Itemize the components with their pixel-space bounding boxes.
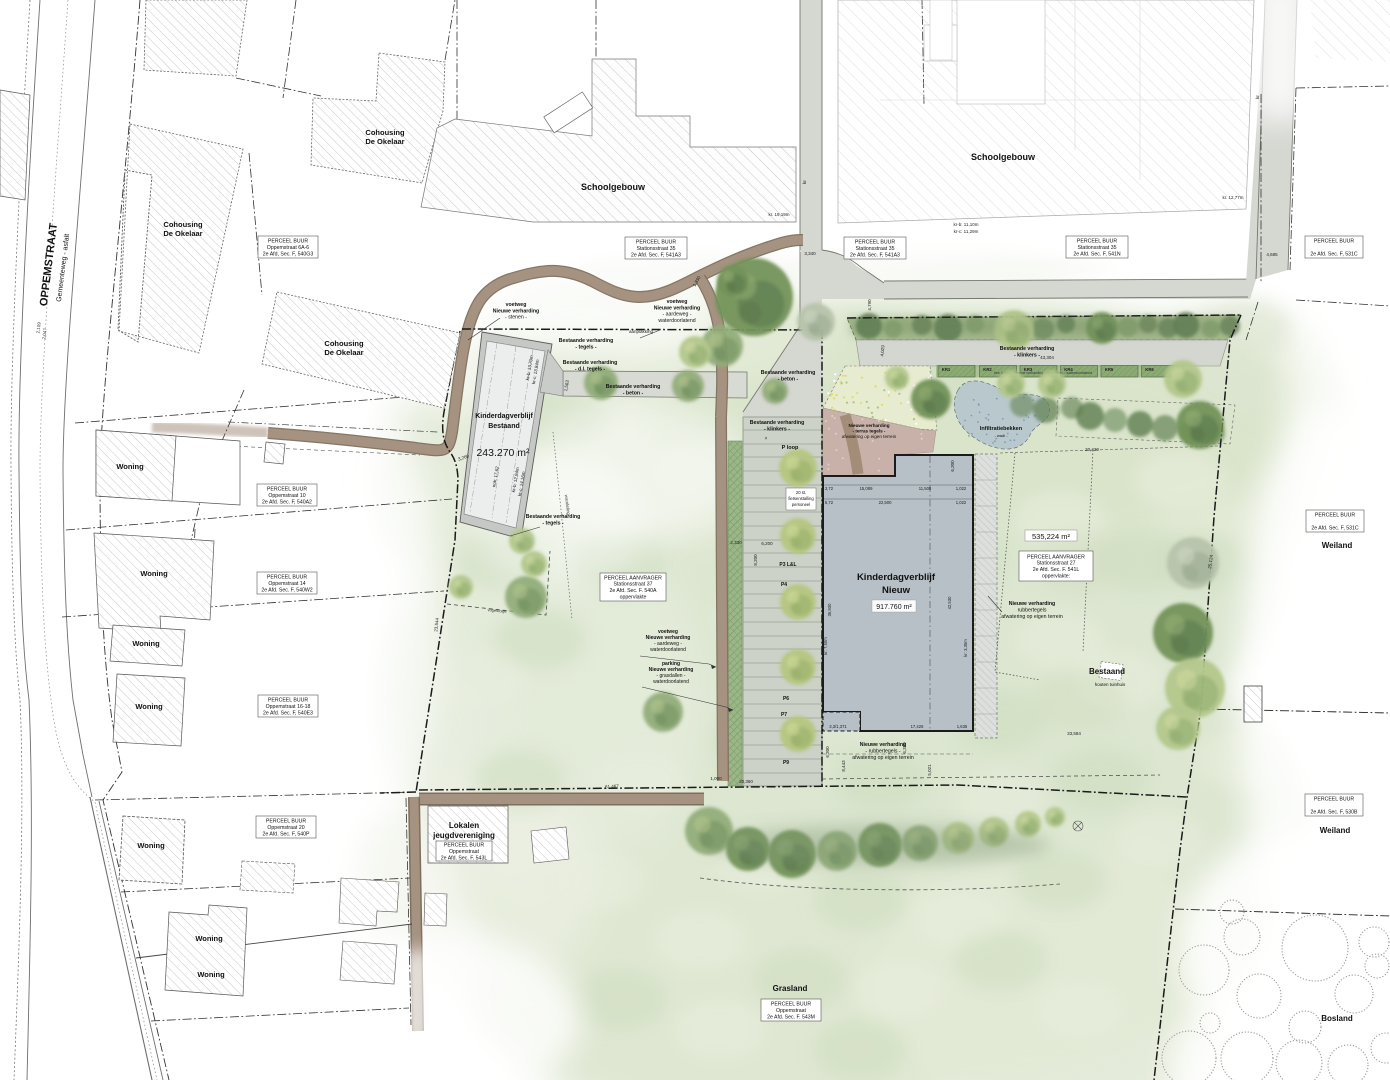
- svg-text:20 st.: 20 st.: [796, 490, 806, 495]
- svg-text:Bestaande verharding: Bestaande verharding: [563, 360, 618, 366]
- svg-text:4,790: 4,790: [867, 299, 872, 311]
- svg-text:Woning: Woning: [135, 702, 163, 711]
- svg-text:6,300: 6,300: [950, 460, 955, 472]
- svg-text:2e Afd. Sec. F, 541N: 2e Afd. Sec. F, 541N: [1073, 251, 1121, 257]
- svg-text:2e Afd. Sec. F, 530B: 2e Afd. Sec. F, 530B: [1310, 809, 1358, 815]
- svg-text:Oppemstraat 20: Oppemstraat 20: [267, 825, 304, 831]
- svg-text:rubbertegels: rubbertegels: [1018, 608, 1047, 614]
- svg-text:Stationsstraat 35: Stationsstraat 35: [637, 246, 676, 252]
- svg-text:1,022: 1,022: [956, 500, 967, 505]
- svg-text:2e Afd. Sec. F, 541A3: 2e Afd. Sec. F, 541A3: [631, 252, 681, 258]
- svg-text:kr-b: 11,10m: kr-b: 11,10m: [954, 222, 979, 227]
- svg-text:3,3/1,371: 3,3/1,371: [829, 724, 847, 729]
- svg-text:oppervlakte: oppervlakte: [620, 594, 647, 600]
- svg-text:Woning: Woning: [116, 462, 144, 471]
- svg-text:voetweg: voetweg: [667, 299, 688, 305]
- svg-text:Kinderdagverblijf: Kinderdagverblijf: [475, 413, 533, 420]
- svg-text:Woning: Woning: [137, 841, 165, 850]
- svg-text:5,021: 5,021: [927, 764, 932, 776]
- svg-text:917.760 m²: 917.760 m²: [876, 604, 912, 611]
- svg-text:- stenen -: - stenen -: [505, 315, 527, 321]
- svg-text:PERCEEL BUUR: PERCEEL BUUR: [1314, 796, 1354, 802]
- svg-text:8,443: 8,443: [841, 760, 846, 772]
- svg-text:Grasland: Grasland: [773, 984, 808, 993]
- svg-text:PERCEEL BUUR: PERCEEL BUUR: [1077, 238, 1117, 244]
- svg-text:Oppemstraat 6A-6: Oppemstraat 6A-6: [267, 245, 309, 251]
- svg-text:22,500: 22,500: [879, 500, 892, 505]
- svg-text:6,300: 6,300: [825, 746, 830, 758]
- svg-text:waterdoorlatend: waterdoorlatend: [658, 318, 695, 324]
- svg-text:2e Afd, Sec. F, 540G3: 2e Afd, Sec. F, 540G3: [263, 251, 314, 257]
- svg-text:PERCEEL AANVRAGER: PERCEEL AANVRAGER: [1027, 554, 1085, 560]
- svg-text:- beton -: - beton -: [778, 376, 799, 382]
- svg-text:PERCEEL BUUR: PERCEEL BUUR: [267, 574, 307, 580]
- svg-text:kr: 7,50m: kr: 7,50m: [823, 637, 828, 655]
- svg-text:Woning: Woning: [195, 934, 223, 943]
- svg-text:Stationsstraat 35: Stationsstraat 35: [856, 246, 895, 252]
- svg-text:15,089: 15,089: [860, 486, 873, 491]
- svg-text:- wadi -: - wadi -: [994, 433, 1008, 438]
- svg-text:KR5: KR5: [1105, 367, 1114, 372]
- svg-text:- terras tegels -: - terras tegels -: [853, 429, 886, 434]
- svg-text:Woning: Woning: [140, 569, 168, 578]
- svg-text:kr. 19,19m: kr. 19,19m: [768, 212, 789, 217]
- svg-text:2e Afd. Sec. F, 540P: 2e Afd. Sec. F, 540P: [262, 831, 310, 837]
- svg-text:Kinderdagverblijf: Kinderdagverblijf: [857, 572, 936, 583]
- svg-text:kr: kr: [802, 180, 807, 184]
- svg-text:PERCEEL AANVRAGER: PERCEEL AANVRAGER: [604, 575, 662, 581]
- svg-text:Bestaand: Bestaand: [488, 423, 520, 430]
- svg-text:- klinkers -: - klinkers -: [764, 426, 790, 432]
- svg-text:2e Afd. Sec. F, 531C: 2e Afd. Sec. F, 531C: [1311, 525, 1359, 531]
- svg-text:Schoolgebouw: Schoolgebouw: [581, 182, 646, 192]
- svg-text:houten tuinhuis: houten tuinhuis: [1095, 682, 1126, 687]
- svg-text:kr-c: 11,29m: kr-c: 11,29m: [954, 229, 979, 234]
- svg-text:4,029: 4,029: [880, 345, 886, 357]
- svg-text:De Okelaar: De Okelaar: [324, 348, 363, 357]
- svg-text:P7: P7: [781, 712, 787, 718]
- svg-text:17,426: 17,426: [911, 724, 924, 729]
- svg-text:kr: kr: [1255, 95, 1260, 99]
- svg-text:Cohousing: Cohousing: [163, 220, 203, 229]
- svg-text:PERCEEL BUUR: PERCEEL BUUR: [266, 818, 306, 824]
- svg-text:Bestaande verharding: Bestaande verharding: [1000, 346, 1055, 352]
- svg-text:Woning: Woning: [132, 639, 160, 648]
- svg-text:Stationsstraat 27: Stationsstraat 27: [1037, 561, 1076, 567]
- svg-text:PERCEEL BUUR: PERCEEL BUUR: [1315, 512, 1355, 518]
- svg-text:61,467: 61,467: [605, 784, 620, 790]
- svg-text:1,000: 1,000: [710, 776, 722, 781]
- svg-text:Oppemstraat 14: Oppemstraat 14: [268, 581, 305, 587]
- svg-text:Weiland: Weiland: [1322, 541, 1353, 550]
- svg-text:Nieuwe verharding: Nieuwe verharding: [654, 305, 700, 311]
- svg-text:- d.l. tegels -: - d.l. tegels -: [575, 366, 606, 372]
- svg-text:2e Afd. Sec. F, 531C: 2e Afd. Sec. F, 531C: [1310, 251, 1358, 257]
- svg-text:8,200: 8,200: [753, 554, 758, 566]
- svg-text:KR1: KR1: [942, 367, 951, 372]
- svg-text:3,340: 3,340: [804, 251, 816, 256]
- svg-text:aanplakking: aanplakking: [629, 329, 654, 334]
- svg-text:Bestaand: Bestaand: [1089, 667, 1125, 676]
- svg-text:personeel: personeel: [792, 502, 810, 507]
- svg-text:De Okelaar: De Okelaar: [365, 137, 404, 146]
- svg-text:2,330: 2,330: [730, 540, 742, 545]
- svg-text:Nieuwe verharding: Nieuwe verharding: [848, 423, 889, 428]
- svg-text:Bestaande verharding: Bestaande verharding: [559, 338, 614, 344]
- svg-text:×: ×: [765, 436, 768, 442]
- svg-text:KR2: KR2: [983, 367, 992, 372]
- svg-text:Nieuwe verharding: Nieuwe verharding: [493, 308, 539, 314]
- svg-text:1,022: 1,022: [956, 486, 967, 491]
- svg-text:PERCEEL BUUR: PERCEEL BUUR: [1314, 238, 1354, 244]
- svg-text:oppervlakte:: oppervlakte:: [1042, 573, 1070, 579]
- svg-text:afwatering op eigen terrein: afwatering op eigen terrein: [842, 434, 897, 439]
- svg-text:Lokalen: Lokalen: [449, 821, 479, 830]
- svg-text:kr. 12,77m: kr. 12,77m: [1222, 195, 1243, 200]
- svg-text:20,360: 20,360: [739, 779, 753, 784]
- svg-text:43,304: 43,304: [1040, 355, 1054, 360]
- svg-text:20,420: 20,420: [1085, 447, 1099, 452]
- svg-text:5,72: 5,72: [825, 500, 834, 505]
- svg-text:afwatering op eigen terrein: afwatering op eigen terrein: [1001, 614, 1063, 620]
- svg-text:Bestaande verharding: Bestaande verharding: [750, 420, 805, 426]
- svg-text:- aardeweg -: - aardeweg -: [662, 312, 691, 318]
- svg-text:- beton -: - beton -: [623, 390, 644, 396]
- svg-text:De Okelaar: De Okelaar: [163, 229, 202, 238]
- svg-text:2e Afd. Sec. F. 543L: 2e Afd. Sec. F. 543L: [441, 855, 488, 861]
- svg-text:Nieuwe verharding: Nieuwe verharding: [860, 742, 906, 748]
- svg-text:KR6: KR6: [1145, 367, 1154, 372]
- svg-text:voetweg: voetweg: [506, 302, 527, 308]
- svg-text:4,685: 4,685: [1266, 252, 1278, 257]
- svg-text:Cohousing: Cohousing: [324, 339, 364, 348]
- svg-text:Nieuw: Nieuw: [882, 585, 911, 596]
- svg-text:Stationsstraat 35: Stationsstraat 35: [1078, 245, 1117, 251]
- svg-text:P9: P9: [783, 760, 789, 766]
- svg-text:243.270 m²: 243.270 m²: [476, 447, 530, 459]
- svg-text:1,635: 1,635: [957, 724, 968, 729]
- svg-text:2e Afd. Sec. F, 540E3: 2e Afd. Sec. F, 540E3: [263, 710, 313, 716]
- svg-text:Woning: Woning: [197, 970, 225, 979]
- svg-text:Bestaande verharding: Bestaande verharding: [526, 514, 581, 520]
- svg-text:afwatering op eigen terrein: afwatering op eigen terrein: [852, 755, 914, 761]
- svg-text:- rubbertegels -: - rubbertegels -: [865, 749, 900, 755]
- svg-text:kr: 3,35m: kr: 3,35m: [963, 639, 968, 657]
- svg-text:waterdoorlatend: waterdoorlatend: [650, 647, 686, 653]
- svg-text:- klinkers -: - klinkers -: [1014, 352, 1040, 358]
- svg-text:Oppemstraat 16-18: Oppemstraat 16-18: [266, 704, 311, 710]
- svg-text:PERCEEL BUUR: PERCEEL BUUR: [268, 238, 308, 244]
- svg-text:jeugdvereniging: jeugdvereniging: [432, 831, 495, 840]
- svg-text:2e Afd. Sec. F, 541A3: 2e Afd. Sec. F, 541A3: [850, 252, 900, 258]
- svg-text:2e Afd. Sec. F. 540A: 2e Afd. Sec. F. 540A: [609, 588, 657, 594]
- svg-text:PERCEEL BUUR: PERCEEL BUUR: [267, 486, 307, 492]
- svg-text:Weiland: Weiland: [1320, 826, 1351, 835]
- svg-text:Oppemstraat: Oppemstraat: [449, 849, 480, 855]
- svg-text:- tegels -: - tegels -: [542, 520, 564, 526]
- svg-text:33,584: 33,584: [1067, 731, 1081, 736]
- svg-text:3,72: 3,72: [825, 486, 834, 491]
- svg-text:2e Afd. Sec. F. 541L: 2e Afd. Sec. F. 541L: [1033, 567, 1080, 573]
- svg-text:535,224 m²: 535,224 m²: [1032, 532, 1070, 541]
- svg-text:Bestaande verharding: Bestaande verharding: [606, 384, 661, 390]
- svg-text:Bosland: Bosland: [1321, 1014, 1353, 1023]
- svg-text:P loop: P loop: [782, 445, 799, 451]
- svg-text:Oppemstraat 10: Oppemstraat 10: [268, 493, 305, 499]
- svg-text:waterdoorlatend: waterdoorlatend: [653, 679, 689, 685]
- svg-text:PERCEEL BUUR: PERCEEL BUUR: [444, 842, 484, 848]
- svg-text:PERCEEL BUUR: PERCEEL BUUR: [855, 239, 895, 245]
- svg-text:2e Afd. Sec. F, 540W2: 2e Afd. Sec. F, 540W2: [261, 587, 312, 593]
- svg-text:Cohousing: Cohousing: [365, 128, 405, 137]
- svg-text:PERCEEL BUUR: PERCEEL BUUR: [636, 239, 676, 245]
- svg-text:PERCEEL BUUR: PERCEEL BUUR: [771, 1001, 811, 1007]
- svg-text:42,530: 42,530: [947, 596, 952, 609]
- svg-text:fietsenstalling: fietsenstalling: [788, 496, 814, 501]
- svg-text:11,500: 11,500: [919, 486, 932, 491]
- svg-text:PERCEEL BUUR: PERCEEL BUUR: [268, 697, 308, 703]
- svg-text:6,200: 6,200: [761, 541, 773, 546]
- svg-text:Infiltratiebekken: Infiltratiebekken: [980, 426, 1023, 432]
- svg-text:2e Afd. Sec. F. 543M: 2e Afd. Sec. F. 543M: [767, 1014, 815, 1020]
- svg-text:Oppemstraat: Oppemstraat: [776, 1008, 807, 1014]
- svg-text:Bestaande verharding: Bestaande verharding: [761, 370, 816, 376]
- svg-text:P3 L&L: P3 L&L: [779, 562, 796, 568]
- svg-text:Nieuwe verharding: Nieuwe verharding: [1009, 601, 1055, 607]
- svg-text:2e Afd. Sec. F, 540A2: 2e Afd. Sec. F, 540A2: [262, 499, 312, 505]
- svg-text:P6: P6: [783, 696, 789, 702]
- svg-text:- tegels -: - tegels -: [575, 344, 597, 350]
- svg-text:36,930: 36,930: [827, 603, 832, 616]
- svg-text:P4: P4: [781, 582, 787, 588]
- svg-text:Stationsstraat 37: Stationsstraat 37: [614, 582, 653, 588]
- svg-text:Schoolgebouw: Schoolgebouw: [971, 152, 1036, 162]
